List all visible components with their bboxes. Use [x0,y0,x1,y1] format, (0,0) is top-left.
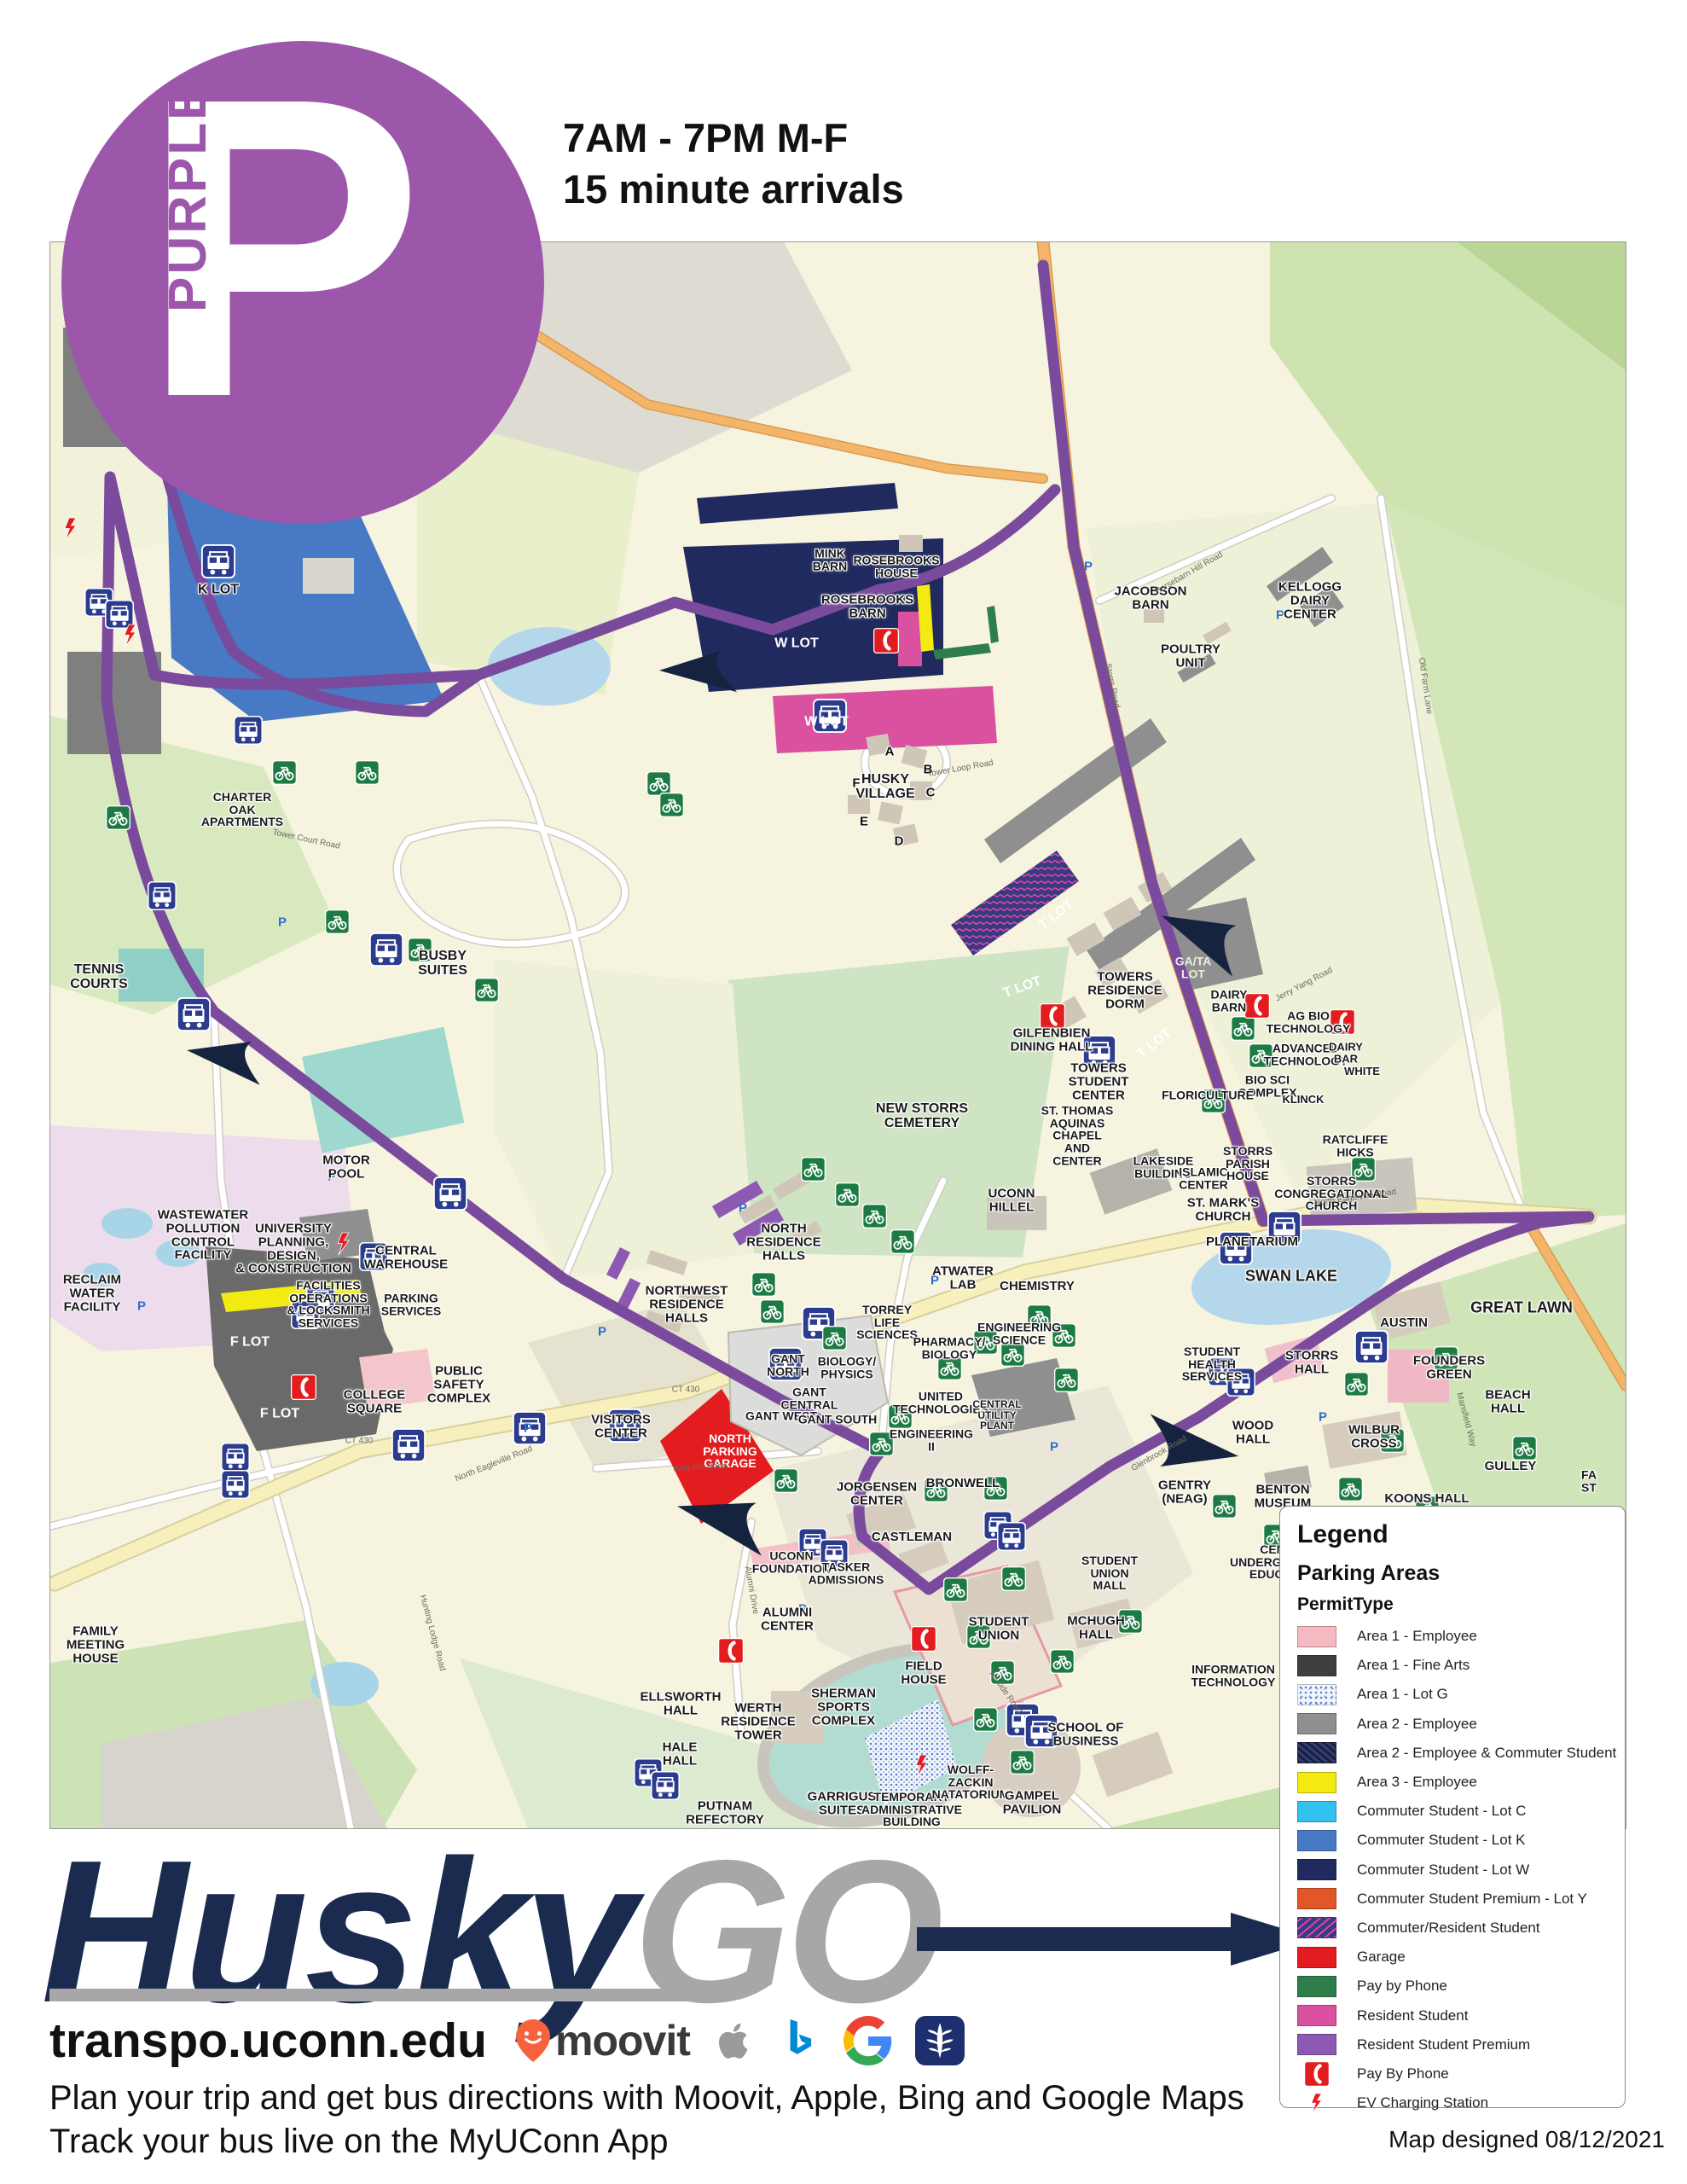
legend-item-label: Resident Student Premium [1357,2036,1530,2053]
legend-item: Pay by Phone [1297,1972,1625,2001]
map-label: AG BIO TECHNOLOGY [1267,1009,1351,1034]
map-label: TASKER ADMISSIONS [809,1560,884,1585]
map-label: ST. THOMAS AQUINAS CHAPEL AND CENTER [1041,1104,1114,1166]
map-label: GANT CENTRAL [781,1385,838,1410]
legend-subtitle: Parking Areas [1297,1561,1625,1586]
map-label: STORRS PARISH HOUSE [1223,1145,1272,1182]
legend-swatch [1297,2034,1336,2055]
ev-charging-icon [1297,2093,1336,2114]
map-label: COLLEGE SQUARE [344,1388,406,1415]
map-label: WILBUR CROSS [1348,1423,1400,1450]
legend-group: PermitType [1297,1594,1625,1615]
map-label: NORTHWEST RESIDENCE HALLS [646,1284,728,1324]
map-label: NEW STORRS CEMETERY [876,1102,968,1131]
map-label: ENGINEERING SCIENCE [977,1321,1061,1345]
bing-icon [779,2014,821,2067]
map-label: SWAN LAKE [1245,1269,1337,1285]
huskygo-logo: HuskyGO [41,1815,939,2012]
map-label: CENTRAL WAREHOUSE [364,1244,448,1271]
legend-item: Garage [1297,1943,1625,1972]
purple-route-badge: P PURPLE [61,41,544,524]
map-label: FLORICULTURE [1162,1089,1254,1102]
map-label: STUDENT HEALTH SERVICES [1182,1345,1243,1383]
footer-instructions: Plan your trip and get bus directions wi… [49,2077,1244,2164]
map-label: JORGENSEN CENTER [837,1480,917,1507]
map-label: CASTLEMAN [872,1531,952,1544]
map-label: SHERMAN SPORTS COMPLEX [811,1687,876,1727]
legend-swatch [1297,1859,1336,1880]
map-label: MOTOR POOL [322,1153,370,1181]
map-label: HALE HALL [663,1740,698,1768]
parking-p-icon: P [1050,1440,1058,1455]
legend-item: Commuter Student Premium - Lot Y [1297,1885,1625,1914]
map-label: RECLAIM WATER FACILITY [63,1273,121,1313]
transpo-url: transpo.uconn.edu [49,2013,487,2069]
map-label: UCONN HILLEL [988,1187,1035,1214]
legend-item-label: Area 1 - Employee [1357,1628,1477,1645]
parking-p-icon: P [598,1325,606,1339]
map-label: GILFENBIEN DINING HALL [1011,1026,1093,1054]
legend-swatch [1297,1947,1336,1968]
map-label: FACILITIES OPERATIONS & LOCKSMITH SERVIC… [287,1280,369,1330]
legend-item: Area 1 - Lot G [1297,1680,1625,1709]
husky-village-letter: D [895,834,904,849]
route-word-vertical: PURPLE [162,83,215,312]
map-label: WHITE [1344,1066,1380,1077]
legend-item-label: Commuter Student - Lot C [1357,1803,1526,1820]
schedule-line1: 7AM - 7PM M-F [563,113,904,164]
logo-arrow-icon [917,1909,1318,1973]
map-label: GANT NORTH [767,1352,809,1377]
map-label: F LOT [260,1408,299,1422]
map-label: FIELD HOUSE [901,1659,946,1687]
map-label: BEACH HALL [1485,1388,1530,1415]
map-label: ROSEBROOKS BARN [821,593,913,620]
map-label: JACOBSON BARN [1114,584,1186,612]
legend-item-label: Area 2 - Employee [1357,1716,1477,1733]
legend-panel: Legend Parking Areas PermitType Area 1 -… [1279,1506,1626,2108]
husky-village-letter: A [885,745,895,759]
map-label: GENTRY (NEAG) [1158,1478,1211,1506]
footer-line2: Track your bus live on the MyUConn App [49,2120,1244,2164]
map-label: KLINCK [1282,1094,1324,1106]
map-label: DAIRY BARN [1210,988,1247,1013]
legend-swatch [1297,1655,1336,1676]
map-label: ELLSWORTH HALL [641,1690,722,1717]
map-label: SCHOOL OF BUSINESS [1048,1721,1124,1748]
map-label: MINK BARN [813,547,847,572]
legend-item: Resident Student Premium [1297,2030,1625,2059]
legend-swatch [1297,1888,1336,1909]
legend-swatch [1297,1917,1336,1938]
husky-village-letter: F [852,776,860,791]
map-label: GA/TA LOT [1175,955,1212,979]
parking-p-icon: P [524,1421,532,1436]
legend-item-label: Pay by Phone [1357,1978,1447,1995]
map-label: ISLAMIC CENTER [1179,1165,1228,1190]
legend-item-label: Pay By Phone [1357,2065,1449,2082]
moovit-icon: moovit [516,2019,690,2062]
map-label: ROSEBROOKS HOUSE [853,554,939,578]
map-label: CENTRAL UTILITY PLANT [972,1399,1021,1432]
map-credit: Map designed 08/12/2021 [1322,2126,1665,2153]
map-label: FA ST [1581,1468,1597,1493]
poster-page: P PURPLE 7AM - 7PM M-F 15 minute arrival… [0,0,1687,2184]
map-label: GULLEY [1485,1460,1537,1473]
map-label: DAIRY BAR [1329,1041,1363,1064]
map-label: FAMILY MEETING HOUSE [67,1624,125,1664]
road-label: CT 430 [672,1385,700,1395]
map-label: WERTH RESIDENCE TOWER [721,1701,796,1741]
legend-swatch [1297,1830,1336,1851]
map-label: ENGINEERING II [890,1427,973,1452]
pay-by-phone-icon [1297,2063,1336,2084]
legend-item: Pay By Phone [1297,2059,1625,2088]
legend-item: EV Charging Station [1297,2088,1625,2117]
map-label: TOWERS RESIDENCE DORM [1087,970,1162,1010]
map-label: PARKING SERVICES [381,1292,442,1316]
map-label: POULTRY UNIT [1161,642,1220,670]
legend-title: Legend [1297,1520,1625,1549]
map-label: INFORMATION TECHNOLOGY [1191,1663,1276,1687]
map-label: TOWERS STUDENT CENTER [1069,1061,1129,1101]
map-label: WOLFF- ZACKIN NATATORIUM [932,1763,1010,1801]
legend-item: Area 3 - Employee [1297,1768,1625,1797]
map-label: BUSBY SUITES [418,950,467,979]
legend-item-label: Area 2 - Employee & Commuter Student [1357,1745,1616,1762]
map-label: STUDENT UNION MALL [1081,1554,1138,1592]
uconn-app-icon [915,2016,965,2065]
map-label: HUSKY VILLAGE [855,773,914,802]
legend-item-label: Commuter Student - Lot W [1357,1862,1529,1879]
map-label: ST. MARK'S CHURCH [1187,1196,1259,1223]
map-label: TORREY LIFE SCIENCES [856,1304,918,1341]
map-label: PLANETARIUM [1206,1235,1298,1249]
map-label: GANT SOUTH [798,1414,878,1426]
apple-icon [712,2015,757,2066]
map-label: RATCLIFFE HICKS [1323,1133,1388,1158]
schedule-text: 7AM - 7PM M-F 15 minute arrivals [563,113,904,215]
map-label: STORRS HALL [1285,1349,1338,1376]
legend-item-label: Commuter Student Premium - Lot Y [1357,1891,1587,1908]
map-label: WOOD HALL [1232,1419,1273,1446]
map-label: W LOT [774,637,819,652]
legend-item: Area 2 - Employee & Commuter Student [1297,1739,1625,1768]
legend-item: Area 2 - Employee [1297,1710,1625,1739]
legend-swatch [1297,1742,1336,1763]
legend-item-label: Commuter Student - Lot K [1357,1832,1525,1849]
map-label: STUDENT UNION [969,1615,1029,1642]
legend-item-label: Area 1 - Fine Arts [1357,1657,1470,1674]
parking-p-icon: P [1084,560,1093,574]
legend-item-label: Commuter/Resident Student [1357,1920,1540,1937]
legend-item-label: Resident Student [1357,2007,1468,2024]
map-label: FOUNDERS GREEN [1413,1354,1485,1381]
legend-item-label: Area 3 - Employee [1357,1774,1477,1791]
map-label: MCHUGH HALL [1067,1614,1125,1641]
parking-p-icon: P [1319,1410,1327,1425]
legend-swatch [1297,1801,1336,1822]
legend-swatch [1297,1626,1336,1647]
map-label: UNIVERSITY PLANNING, DESIGN, & CONSTRUCT… [235,1223,351,1276]
map-label: VISITORS CENTER [591,1413,651,1440]
legend-items: Area 1 - EmployeeArea 1 - Fine ArtsArea … [1297,1622,1625,2117]
legend-swatch [1297,1713,1336,1734]
map-label: GAMPEL PAVILION [1003,1789,1062,1816]
legend-item-label: Garage [1357,1949,1406,1966]
apps-row: transpo.uconn.edu moovit [49,2005,987,2077]
logo-underline-bar [49,1989,725,2001]
map-label: AUSTIN [1380,1316,1428,1330]
map-label: ALUMNI CENTER [761,1606,814,1633]
legend-swatch [1297,2005,1336,2026]
map-label: K LOT [198,584,239,598]
parking-p-icon: P [739,1201,747,1216]
road-label: CT 430 [345,1437,374,1446]
map-label: W LOT [804,716,849,730]
map-label: F LOT [230,1336,270,1350]
map-label: BRONWELL [926,1477,1000,1490]
map-label: PUBLIC SAFETY COMPLEX [427,1364,490,1404]
google-icon [843,2016,893,2065]
legend-item-label: Area 1 - Lot G [1357,1686,1448,1703]
map-label: PHARMACY/ BIOLOGY [913,1335,986,1360]
legend-item: Resident Student [1297,2001,1625,2030]
footer-line1: Plan your trip and get bus directions wi… [49,2077,1244,2120]
map-label: CHARTER OAK APARTMENTS [201,791,283,828]
legend-item-label: EV Charging Station [1357,2094,1488,2111]
map-label: KELLOGG DAIRY CENTER [1278,580,1342,620]
legend-item: Commuter Student - Lot W [1297,1856,1625,1885]
map-label: NORTH RESIDENCE HALLS [746,1222,821,1262]
map-label: ATWATER LAB [932,1264,994,1292]
map-label: KOONS HALL [1384,1492,1469,1506]
legend-item: Commuter Student - Lot C [1297,1797,1625,1826]
legend-item: Area 1 - Fine Arts [1297,1651,1625,1680]
map-label: BIOLOGY/ PHYSICS [818,1355,876,1380]
legend-item: Area 1 - Employee [1297,1622,1625,1651]
map-label: CHEMISTRY [1000,1280,1075,1293]
schedule-line2: 15 minute arrivals [563,164,904,215]
legend-swatch [1297,1976,1336,1997]
legend-item: Commuter Student - Lot K [1297,1826,1625,1855]
husky-village-letter: E [860,815,868,829]
parking-p-icon: P [278,915,287,930]
husky-village-letter: C [926,786,936,800]
map-label: GREAT LAWN [1470,1300,1573,1316]
legend-swatch [1297,1684,1336,1705]
legend-item: Commuter/Resident Student [1297,1914,1625,1943]
legend-swatch [1297,1772,1336,1793]
parking-p-icon: P [137,1299,146,1314]
map-label: TENNIS COURTS [70,963,128,992]
